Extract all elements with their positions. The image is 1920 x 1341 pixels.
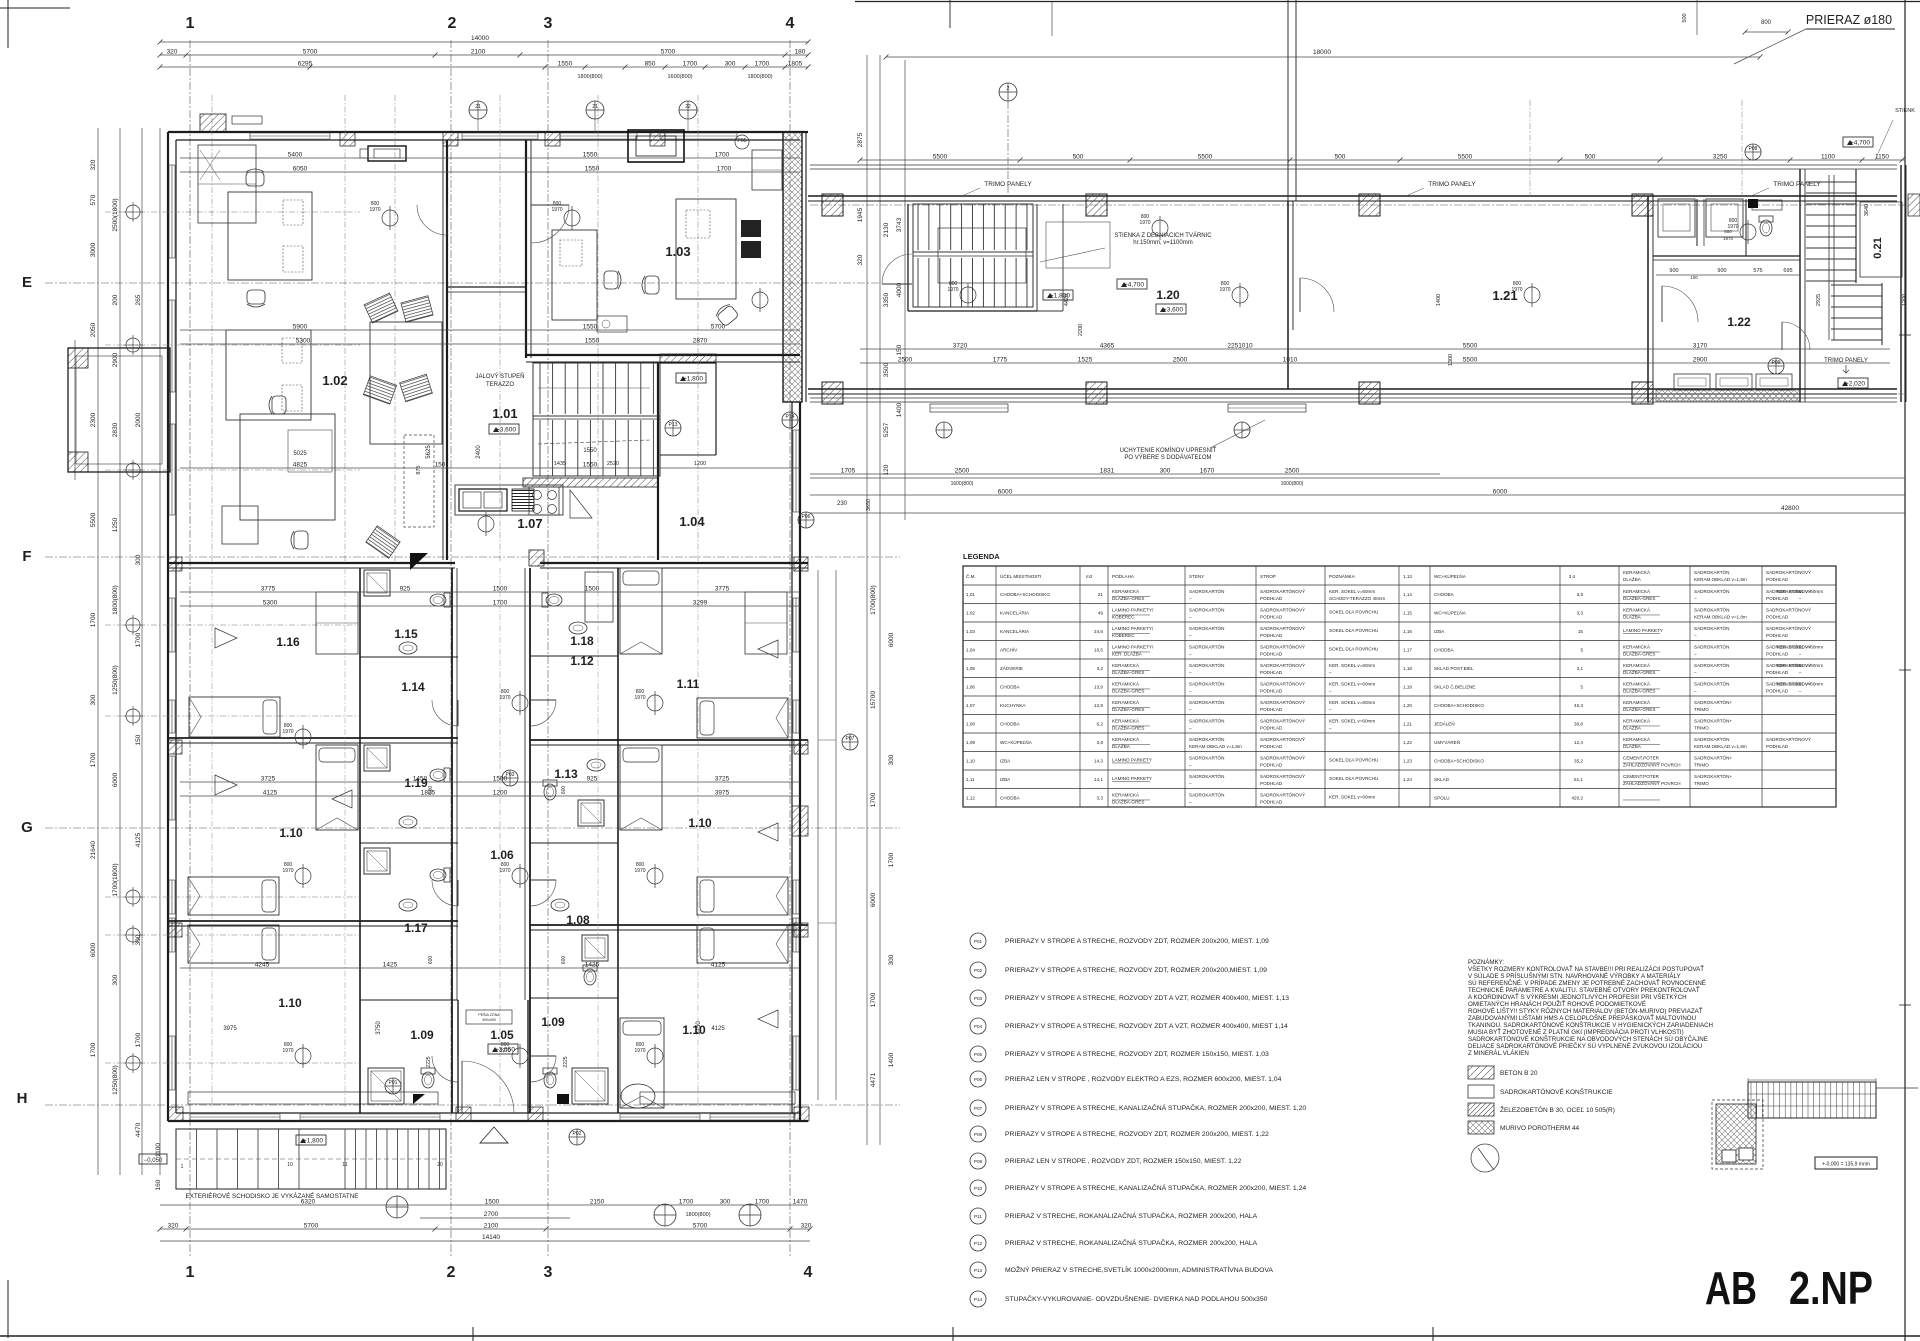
svg-text:–: –: [1189, 799, 1192, 804]
svg-text:1.10: 1.10: [688, 816, 712, 830]
svg-text:320: 320: [857, 254, 864, 265]
svg-text:TRIMO: TRIMO: [1694, 762, 1709, 767]
svg-text:5500: 5500: [933, 154, 948, 161]
svg-text:UMYVÁREŇ: UMYVÁREŇ: [1434, 739, 1460, 745]
svg-text:JEDÁLEŇ: JEDÁLEŇ: [1434, 721, 1455, 727]
svg-text:1970: 1970: [282, 729, 293, 735]
svg-text:1705: 1705: [841, 468, 856, 475]
svg-text:PODHĽAD: PODHĽAD: [1766, 577, 1789, 582]
svg-text:1700: 1700: [90, 1042, 97, 1057]
svg-text:1550: 1550: [558, 61, 573, 68]
svg-text:SADROKARTÓN: SADROKARTÓN: [1694, 662, 1729, 668]
svg-text:3725: 3725: [261, 776, 276, 783]
svg-text:KANCELÁRIA: KANCELÁRIA: [1000, 610, 1030, 616]
svg-text:3,3: 3,3: [1097, 796, 1104, 801]
svg-text:TRIMO PANELY: TRIMO PANELY: [1773, 181, 1821, 188]
svg-text:BETON B 20: BETON B 20: [1500, 1070, 1538, 1077]
svg-text:1945: 1945: [857, 207, 864, 222]
svg-text:600: 600: [561, 956, 567, 965]
svg-text:PRIERAZY V STROPE A STRECHE, K: PRIERAZY V STROPE A STRECHE, KANALIZAČNÁ…: [1005, 1103, 1306, 1112]
svg-text:2875: 2875: [857, 132, 864, 147]
svg-text:KERAM.OBKLAD v=1,8m: KERAM.OBKLAD v=1,8m: [1694, 744, 1747, 749]
svg-text:1700(800): 1700(800): [870, 585, 877, 615]
svg-text:P03: P03: [974, 996, 983, 1001]
svg-text:SOKEL DĽA POVRCHU: SOKEL DĽA POVRCHU: [1329, 628, 1378, 633]
svg-text:4420: 4420: [1064, 294, 1070, 306]
svg-text:600: 600: [428, 786, 434, 795]
svg-text:LAMINO PARKETY/: LAMINO PARKETY/: [1112, 644, 1154, 649]
svg-text:KERAMICKÁ: KERAMICKÁ: [1112, 699, 1140, 705]
svg-text:PODHĽAD: PODHĽAD: [1766, 614, 1789, 619]
svg-text:1970: 1970: [369, 207, 380, 213]
svg-text:1970: 1970: [282, 1048, 293, 1054]
svg-text:SADROKARTÓN: SADROKARTÓN: [1189, 662, 1224, 668]
svg-text:1,13: 1,13: [1403, 574, 1412, 579]
svg-text:SPOLU: SPOLU: [1434, 796, 1450, 801]
svg-text:PRIERAZ V STRECHE, ROKANALIZAČ: PRIERAZ V STRECHE, ROKANALIZAČNÁ STUPAČK…: [1005, 1238, 1258, 1247]
svg-text:925: 925: [400, 586, 411, 593]
svg-text:KERAMICKÁ: KERAMICKÁ: [1623, 699, 1651, 705]
svg-text:TKANINOU. SADROKARTÓNOVÉ KONŠT: TKANINOU. SADROKARTÓNOVÉ KONŠTRUKCIE V H…: [1468, 1022, 1713, 1029]
svg-text:SADROKARTÓNOVÝ: SADROKARTÓNOVÝ: [1260, 588, 1305, 594]
svg-text:Č.M.: Č.M.: [966, 573, 976, 579]
svg-text:5300: 5300: [296, 338, 311, 345]
svg-text:320: 320: [167, 49, 178, 56]
svg-text:P06: P06: [974, 1077, 983, 1082]
svg-text:1,15: 1,15: [1403, 611, 1412, 616]
svg-text:300: 300: [888, 954, 895, 965]
svg-text:1.03: 1.03: [665, 244, 690, 259]
svg-text:KERAMICKÁ: KERAMICKÁ: [1112, 662, 1140, 668]
svg-text:UCHYTENIE KOMÍNOV UPRESNIŤ: UCHYTENIE KOMÍNOV UPRESNIŤ: [1120, 446, 1217, 454]
svg-text:+2,020: +2,020: [1845, 381, 1865, 388]
svg-text:14000: 14000: [471, 35, 489, 42]
svg-text:PODHĽAD: PODHĽAD: [1766, 744, 1789, 749]
svg-text:DLAŽBA-GRES: DLAŽBA-GRES: [1623, 649, 1655, 656]
svg-text:3,5: 3,5: [1577, 592, 1584, 597]
svg-text:12,4: 12,4: [1574, 740, 1583, 745]
svg-text:21: 21: [592, 104, 598, 110]
svg-text:PODHĽAD: PODHĽAD: [1766, 596, 1789, 601]
svg-text:3,2: 3,2: [1097, 666, 1104, 671]
svg-text:WC+KÚPEĽŇA: WC+KÚPEĽŇA: [1434, 610, 1467, 616]
svg-text:4: 4: [804, 1264, 813, 1281]
svg-text:5257: 5257: [883, 422, 890, 437]
svg-text:PRIERAZ V STRECHE, ROKANALIZAČ: PRIERAZ V STRECHE, ROKANALIZAČNÁ STUPAČK…: [1005, 1211, 1258, 1220]
svg-text:KER. SOKEL v=60mm: KER. SOKEL v=60mm: [1777, 644, 1823, 649]
svg-text:1,02: 1,02: [966, 611, 975, 616]
svg-text:PODHĽAD: PODHĽAD: [1260, 725, 1283, 730]
svg-text:P08: P08: [1749, 146, 1758, 152]
svg-text:CHODBA: CHODBA: [1000, 685, 1021, 690]
svg-text:4245: 4245: [255, 962, 270, 969]
svg-text:PODHĽAD: PODHĽAD: [1260, 707, 1283, 712]
svg-text:m2: m2: [1086, 574, 1093, 579]
svg-text:P13: P13: [974, 1268, 983, 1273]
svg-text:2050: 2050: [90, 322, 97, 337]
svg-text:KERAMICKÁ: KERAMICKÁ: [1623, 569, 1651, 575]
svg-text:320: 320: [168, 1223, 179, 1230]
svg-text:2000: 2000: [135, 412, 142, 427]
svg-text:1700: 1700: [90, 752, 97, 767]
svg-text:P13: P13: [669, 422, 678, 428]
svg-text:PODLAHA: PODLAHA: [1112, 574, 1135, 579]
svg-text:1,01: 1,01: [966, 592, 975, 597]
svg-text:1250(800): 1250(800): [112, 665, 119, 695]
svg-text:CHODBA: CHODBA: [1000, 722, 1021, 727]
svg-text:1150: 1150: [1875, 154, 1889, 161]
svg-text:5700: 5700: [711, 324, 726, 331]
svg-text:IZBA: IZBA: [1000, 759, 1011, 764]
svg-text:SADROKARTÓNOVÝ: SADROKARTÓNOVÝ: [1766, 606, 1811, 612]
svg-text:2520: 2520: [607, 461, 619, 467]
svg-text:–: –: [1189, 651, 1192, 656]
svg-text:SÚ REFERENČNÉ. V PRÍPADE ZMENY: SÚ REFERENČNÉ. V PRÍPADE ZMENY JE POTREB…: [1468, 979, 1706, 987]
svg-text:600: 600: [1724, 229, 1732, 234]
svg-text:SADROKARTÓN: SADROKARTÓN: [1694, 680, 1729, 686]
svg-text:20: 20: [437, 1162, 443, 1168]
svg-text:300: 300: [90, 694, 97, 705]
svg-text:P07: P07: [974, 1106, 983, 1111]
svg-text:DLAŽBA-GRES: DLAŽBA-GRES: [1623, 668, 1655, 675]
svg-text:TECHNICKÉ PARAMETRE A KVALITU.: TECHNICKÉ PARAMETRE A KVALITU. STAVEBNÉ …: [1468, 986, 1700, 994]
svg-text:PODHĽAD: PODHĽAD: [1260, 744, 1283, 749]
svg-text:CHODBA: CHODBA: [1434, 648, 1455, 653]
svg-text:CEMENT.POTER: CEMENT.POTER: [1623, 774, 1660, 779]
svg-text:1970: 1970: [551, 207, 562, 213]
svg-text:KERAMICKÁ: KERAMICKÁ: [1112, 791, 1140, 797]
svg-text:4470: 4470: [135, 1122, 142, 1137]
svg-text:1700: 1700: [493, 600, 508, 607]
svg-text:3650: 3650: [866, 499, 872, 511]
svg-text:1,20: 1,20: [1403, 703, 1412, 708]
svg-text:PRIERAZY V STROPE A STRECHE, R: PRIERAZY V STROPE A STRECHE, ROZVODY ZDT…: [1005, 1131, 1269, 1138]
svg-text:150: 150: [135, 734, 142, 745]
svg-text:SADROKARTÓN: SADROKARTÓN: [1189, 717, 1224, 723]
svg-text:5500: 5500: [1463, 343, 1478, 350]
svg-text:1700: 1700: [135, 1032, 142, 1047]
svg-text:1,21: 1,21: [1403, 722, 1412, 727]
svg-text:1400: 1400: [896, 402, 903, 417]
svg-text:15: 15: [1578, 629, 1584, 634]
svg-text:POZNÁMKA: POZNÁMKA: [1329, 573, 1356, 579]
svg-text:4825: 4825: [293, 462, 308, 469]
svg-text:SADROKARTÓN: SADROKARTÓN: [1694, 643, 1729, 649]
svg-text:DLAŽBA: DLAŽBA: [1623, 723, 1642, 730]
svg-text:21: 21: [475, 104, 481, 110]
svg-text:1.15: 1.15: [394, 627, 418, 641]
svg-text:PODHĽAD: PODHĽAD: [1260, 781, 1283, 786]
svg-text:KERAM.OBKLAD v=1,8m: KERAM.OBKLAD v=1,8m: [1694, 577, 1747, 582]
svg-text:+1,800: +1,800: [303, 1138, 323, 1145]
svg-text:1500: 1500: [585, 586, 600, 593]
svg-text:2: 2: [1007, 86, 1010, 92]
svg-text:P05: P05: [974, 1052, 983, 1057]
svg-text:ŽELEZOBETÓN B 30, OCEĽ 10 505(: ŽELEZOBETÓN B 30, OCEĽ 10 505(R): [1500, 1105, 1615, 1114]
svg-text:STROP: STROP: [1260, 574, 1276, 579]
svg-text:2900: 2900: [112, 352, 119, 367]
svg-text:DLAŽBA-GRES: DLAŽBA-GRES: [1623, 594, 1655, 601]
svg-text:4: 4: [786, 15, 795, 32]
svg-text:DLAŽBA: DLAŽBA: [1623, 742, 1642, 749]
svg-text:3000: 3000: [90, 242, 97, 257]
svg-text:DLAŽBA-GRES: DLAŽBA-GRES: [1112, 594, 1144, 601]
svg-text:1,18: 1,18: [1403, 666, 1412, 671]
svg-text:150: 150: [896, 344, 903, 355]
svg-text:1.10: 1.10: [279, 826, 303, 840]
svg-text:1,12: 1,12: [966, 796, 975, 801]
svg-text:1775: 1775: [993, 357, 1008, 364]
svg-text:21: 21: [1098, 592, 1104, 597]
svg-text:3775: 3775: [715, 586, 730, 593]
svg-text:5: 5: [1580, 648, 1583, 653]
svg-text:PODHĽAD: PODHĽAD: [1260, 762, 1283, 767]
svg-text:2700: 2700: [484, 1211, 499, 1218]
svg-text:1470: 1470: [793, 1199, 808, 1206]
svg-text:–: –: [1329, 707, 1332, 712]
svg-text:42800: 42800: [1781, 505, 1799, 512]
svg-text:AB: AB: [1705, 1262, 1757, 1314]
svg-text:45,3: 45,3: [1574, 703, 1583, 708]
svg-text:300: 300: [888, 754, 895, 765]
svg-text:695: 695: [1783, 268, 1792, 274]
svg-text:+3,600: +3,600: [1163, 307, 1183, 314]
svg-text:SADROKARTÓNOVÉ KONŠTRUKCIE NA: SADROKARTÓNOVÉ KONŠTRUKCIE NA OBVODOVÝCH…: [1468, 1036, 1708, 1043]
svg-text:1500: 1500: [493, 586, 508, 593]
svg-text:3750: 3750: [376, 1021, 382, 1035]
svg-text:11: 11: [342, 1162, 347, 1168]
svg-text:1300: 1300: [1448, 354, 1454, 366]
svg-text:STIENK: STIENK: [1895, 108, 1915, 114]
svg-text:600: 600: [428, 956, 434, 965]
svg-text:1970: 1970: [634, 1048, 645, 1054]
svg-text:1,22: 1,22: [1403, 740, 1412, 745]
svg-text:ZÁDVERIE: ZÁDVERIE: [1000, 665, 1023, 671]
svg-text:SADROKARTÓNOVÝ: SADROKARTÓNOVÝ: [1260, 717, 1305, 723]
svg-text:–: –: [1189, 633, 1192, 638]
svg-text:1970: 1970: [499, 868, 510, 874]
svg-text:SOKEL DĽA POVRCHU: SOKEL DĽA POVRCHU: [1329, 610, 1378, 615]
svg-text:4125: 4125: [711, 962, 726, 969]
svg-text:POZNÁMKY:: POZNÁMKY:: [1468, 959, 1504, 966]
svg-text:1700: 1700: [755, 1199, 770, 1206]
svg-text:PRIERAZY V STROPE A STRECHE, R: PRIERAZY V STROPE A STRECHE, ROZVODY ZDT…: [1005, 1023, 1288, 1030]
svg-text:KER. SOKEL v=60mm: KER. SOKEL v=60mm: [1777, 589, 1823, 594]
svg-text:CEMENT.POTER: CEMENT.POTER: [1623, 755, 1660, 760]
svg-text:5025: 5025: [293, 451, 307, 457]
svg-text:ZABUDOVANÝMI LIŠTAMI HMS A CEL: ZABUDOVANÝMI LIŠTAMI HMS A CELOPLOŠNE PR…: [1468, 1014, 1696, 1022]
svg-text:1.11: 1.11: [677, 677, 700, 691]
svg-text:LAMINO PARKETY/: LAMINO PARKETY/: [1112, 607, 1154, 612]
svg-text:P09: P09: [974, 1159, 983, 1164]
svg-text:1100: 1100: [155, 1143, 162, 1157]
svg-text:CHODBA+SCHODISKO: CHODBA+SCHODISKO: [1434, 759, 1484, 764]
svg-text:850: 850: [645, 61, 656, 68]
svg-text:hr.150mm, v=1100mm: hr.150mm, v=1100mm: [1133, 240, 1192, 246]
svg-text:4125: 4125: [711, 1026, 725, 1032]
svg-text:1600(800): 1600(800): [667, 74, 692, 80]
svg-text:SADROKARTÓN: SADROKARTÓN: [1189, 625, 1224, 631]
svg-text:P01: P01: [974, 939, 983, 944]
svg-text:2925: 2925: [1816, 294, 1822, 306]
svg-text:P14: P14: [974, 1297, 983, 1302]
svg-text:3299: 3299: [693, 600, 708, 607]
svg-text:KERAMICKÁ: KERAMICKÁ: [1623, 662, 1651, 668]
svg-text:VŠETKY ROZMERY KONTROLOVAŤ NA: VŠETKY ROZMERY KONTROLOVAŤ NA STAVBE!!! …: [1468, 965, 1704, 973]
svg-text:3,3: 3,3: [1577, 611, 1584, 616]
svg-text:SADROKARTÓN: SADROKARTÓN: [1189, 754, 1224, 760]
svg-text:1.01: 1.01: [492, 406, 517, 421]
svg-text:49: 49: [1098, 611, 1104, 616]
svg-text:1: 1: [186, 1264, 195, 1281]
svg-text:1970: 1970: [634, 695, 645, 701]
svg-text:PODHĽAD: PODHĽAD: [1766, 688, 1789, 693]
svg-text:–: –: [1694, 688, 1697, 693]
svg-text:SADROKARTÓN: SADROKARTÓN: [1189, 736, 1224, 742]
svg-text:500: 500: [1073, 154, 1084, 161]
svg-text:1,14: 1,14: [1403, 592, 1412, 597]
svg-text:925: 925: [587, 776, 598, 783]
svg-text:150: 150: [435, 462, 446, 469]
svg-text:KER. SOKEL v=60mm: KER. SOKEL v=60mm: [1329, 589, 1375, 594]
svg-text:WC+KÚPEĽŇA: WC+KÚPEĽŇA: [1434, 573, 1467, 579]
svg-text:3,4: 3,4: [1569, 574, 1576, 579]
svg-text:KERAM.OBKLAD v=1,8m: KERAM.OBKLAD v=1,8m: [1694, 614, 1747, 619]
svg-text:1,07: 1,07: [966, 703, 975, 708]
svg-text:P03: P03: [506, 772, 515, 778]
svg-text:2251010: 2251010: [1227, 343, 1253, 350]
svg-text:6000: 6000: [112, 772, 119, 787]
svg-text:ZAHLADZOVANÝ POVRCH: ZAHLADZOVANÝ POVRCH: [1623, 780, 1681, 786]
svg-text:21640: 21640: [90, 841, 97, 859]
svg-text:2225: 2225: [563, 1056, 569, 1067]
svg-text:P11: P11: [974, 1214, 982, 1219]
svg-text:1831: 1831: [1100, 468, 1115, 475]
svg-text:ARCHÍV: ARCHÍV: [1000, 647, 1018, 653]
svg-text:PRIERAZ LEN V STROPE , ROZVODY: PRIERAZ LEN V STROPE , ROZVODY ZDT, ROZM…: [1005, 1158, 1242, 1165]
svg-text:SADROKARTÓNOVÝ: SADROKARTÓNOVÝ: [1260, 699, 1305, 705]
svg-text:15700: 15700: [870, 691, 877, 709]
svg-text:PODHĽAD: PODHĽAD: [1766, 670, 1789, 675]
svg-text:12,8: 12,8: [1094, 703, 1103, 708]
svg-text:2870: 2870: [693, 338, 708, 345]
svg-text:1.20: 1.20: [1156, 288, 1180, 302]
svg-text:3975: 3975: [223, 1026, 237, 1032]
svg-text:51,1: 51,1: [1574, 777, 1583, 782]
svg-text:1200: 1200: [694, 461, 706, 467]
svg-text:1700: 1700: [717, 166, 732, 173]
svg-text:5900: 5900: [293, 324, 308, 331]
svg-text:SADROKARTÓNOVÝ: SADROKARTÓNOVÝ: [1260, 754, 1305, 760]
svg-text:1.16: 1.16: [276, 635, 300, 649]
svg-text:–: –: [1329, 725, 1332, 730]
svg-text:V SÚLADE S PRÍSLUŠNÝMI STN. NA: V SÚLADE S PRÍSLUŠNÝMI STN. NAVRHOVANÉ V…: [1468, 973, 1681, 980]
svg-text:14140: 14140: [482, 1234, 500, 1241]
svg-text:1.18: 1.18: [570, 634, 594, 648]
svg-text:1970: 1970: [634, 868, 645, 874]
svg-text:TRIMO PANELY: TRIMO PANELY: [1428, 181, 1476, 188]
svg-text:IZBA: IZBA: [1434, 629, 1445, 634]
svg-text:DLAŽBA: DLAŽBA: [1623, 575, 1642, 582]
svg-text:1800(800): 1800(800): [577, 74, 602, 80]
svg-text:3250: 3250: [1713, 154, 1728, 161]
svg-text:3725: 3725: [715, 776, 730, 783]
svg-text:1525: 1525: [1078, 357, 1093, 364]
svg-text:180: 180: [795, 49, 806, 56]
svg-text:TRIMO PANELY: TRIMO PANELY: [984, 181, 1032, 188]
svg-text:P01: P01: [389, 1080, 398, 1086]
svg-text:6000: 6000: [1493, 489, 1508, 496]
svg-text:KANCELÁRIA: KANCELÁRIA: [1000, 628, 1030, 634]
svg-text:3720: 3720: [953, 343, 968, 350]
svg-text:3743: 3743: [896, 217, 903, 232]
svg-text:5300: 5300: [263, 600, 278, 607]
svg-text:PODHĽAD: PODHĽAD: [1766, 633, 1789, 638]
svg-text:1800(800): 1800(800): [112, 585, 119, 615]
svg-text:CHODBA+SCHODISKO: CHODBA+SCHODISKO: [1000, 592, 1050, 597]
svg-text:P02: P02: [974, 968, 983, 973]
svg-text:1,19: 1,19: [1403, 685, 1412, 690]
svg-text:200: 200: [112, 294, 119, 305]
svg-text:–: –: [1189, 707, 1192, 712]
svg-text:1,16: 1,16: [1403, 629, 1412, 634]
svg-text:1970: 1970: [499, 1048, 510, 1054]
svg-text:P08: P08: [974, 1132, 983, 1137]
svg-text:DLAŽBA-GRES: DLAŽBA-GRES: [1112, 686, 1144, 693]
svg-text:1,10: 1,10: [966, 759, 975, 764]
svg-text:SADROKARTÓNOVÝ: SADROKARTÓNOVÝ: [1260, 625, 1305, 631]
svg-text:900: 900: [1717, 268, 1726, 274]
svg-text:DLAŽBA-GRES: DLAŽBA-GRES: [1623, 705, 1655, 712]
svg-text:SADROKARTÓN: SADROKARTÓN: [1189, 699, 1224, 705]
svg-text:DELIACE SADROKARTÓNOVÉ PRIEČKY: DELIACE SADROKARTÓNOVÉ PRIEČKY SÚ VYPLNE…: [1468, 1043, 1702, 1050]
svg-text:SADROKARTÓN: SADROKARTÓN: [1694, 606, 1729, 612]
svg-text:6,2: 6,2: [1097, 722, 1104, 727]
svg-text:–: –: [1329, 688, 1332, 693]
svg-text:CHODBA+SCHODISKO: CHODBA+SCHODISKO: [1434, 703, 1484, 708]
svg-text:PRIERAZY V STROPE A STRECHE, K: PRIERAZY V STROPE A STRECHE, KANALIZAČNÁ…: [1005, 1183, 1306, 1192]
svg-text:1.02: 1.02: [322, 373, 347, 388]
svg-text:2100: 2100: [471, 49, 486, 56]
svg-text:KER. SOKEL v=60mm: KER. SOKEL v=60mm: [1329, 681, 1375, 686]
svg-text:SADROKARTÓNOVÝ: SADROKARTÓNOVÝ: [1260, 662, 1305, 668]
svg-text:14,1: 14,1: [1094, 777, 1103, 782]
svg-text:1.08: 1.08: [566, 913, 590, 927]
svg-text:STUPAČKY-VYKUROVANIE- ODVZDUŠN: STUPAČKY-VYKUROVANIE- ODVZDUŠNENIE- DVIE…: [1005, 1294, 1268, 1303]
svg-text:SKLAD Č.BIELIZNE: SKLAD Č.BIELIZNE: [1434, 684, 1475, 690]
svg-text:LAMINO PARKETY: LAMINO PARKETY: [1112, 758, 1152, 763]
svg-text:KERAMICKÁ: KERAMICKÁ: [1623, 643, 1651, 649]
svg-text:35,2: 35,2: [1574, 759, 1583, 764]
svg-text:30,8: 30,8: [1574, 722, 1583, 727]
svg-text:SADROKARTÓN: SADROKARTÓN: [1694, 736, 1729, 742]
svg-text:TRIMO: TRIMO: [1694, 707, 1709, 712]
svg-text:+-0,000 = 135,9 mnm: +-0,000 = 135,9 mnm: [1822, 1162, 1870, 1168]
svg-text:–: –: [1694, 651, 1697, 656]
svg-text:4125: 4125: [263, 790, 278, 797]
svg-text:DLAŽBA-GRES: DLAŽBA-GRES: [1112, 797, 1144, 804]
svg-text:24,6: 24,6: [1094, 629, 1103, 634]
svg-text:PODHĽAD: PODHĽAD: [1260, 799, 1283, 804]
svg-text:570: 570: [90, 194, 97, 205]
svg-text:1425: 1425: [585, 962, 600, 969]
svg-text:1550: 1550: [583, 462, 598, 469]
svg-text:5700: 5700: [661, 49, 676, 56]
svg-text:100: 100: [1690, 275, 1698, 280]
svg-text:1,09: 1,09: [966, 740, 975, 745]
svg-text:ROHOVÉ LIŠTY!! STYKY RÔZNYCH M: ROHOVÉ LIŠTY!! STYKY RÔZNYCH MATERIÁLOV …: [1468, 1007, 1703, 1015]
svg-text:1500: 1500: [485, 1199, 500, 1206]
